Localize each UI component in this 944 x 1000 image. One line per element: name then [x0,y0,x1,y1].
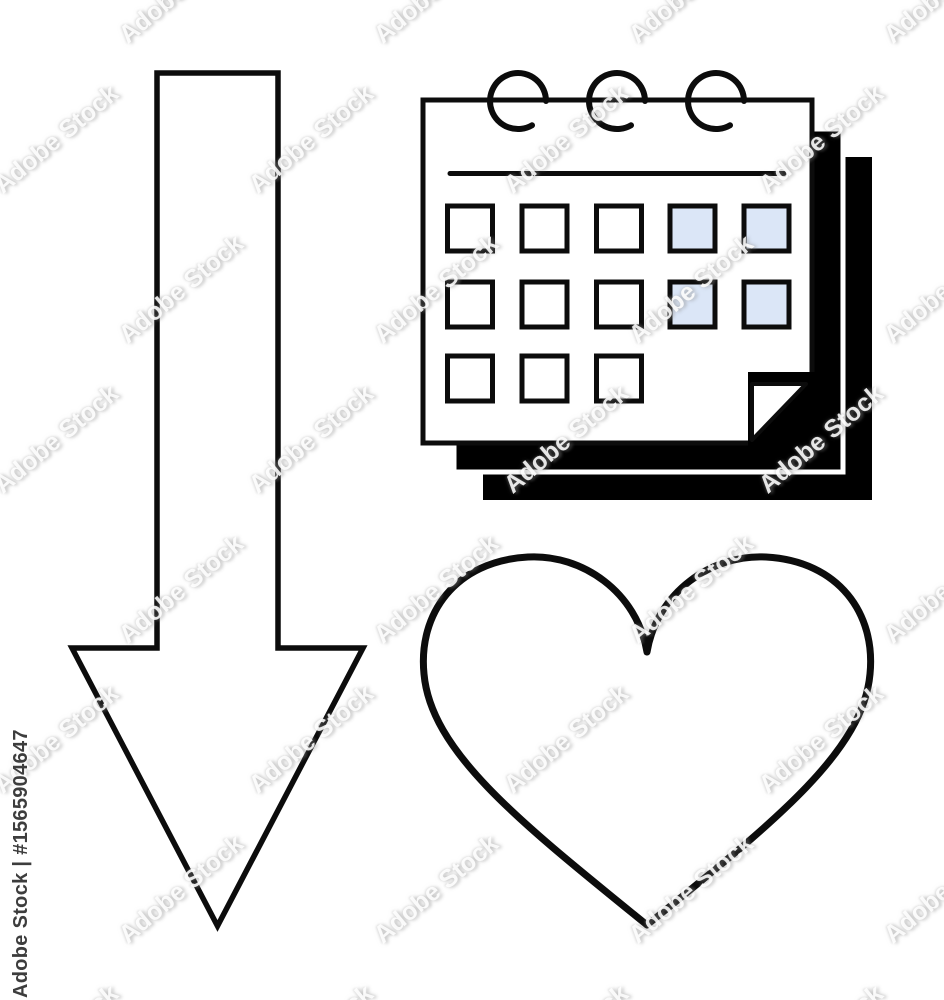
calendar-day-cell [522,356,567,401]
down-arrow-outline [72,73,363,926]
calendar-day-cell [597,206,642,251]
calendar-day-cell-highlighted [744,206,789,251]
calendar-day-cell [448,206,493,251]
stock-id-watermark: Adobe Stock | #1565904647 [10,729,33,998]
stock-image-preview: Adobe StockAdobe StockAdobe StockAdobe S… [0,0,944,1000]
calendar-day-cell [448,356,493,401]
calendar-day-cell [597,282,642,327]
heart-outline [423,557,870,925]
calendar-day-cell [597,356,642,401]
calendar-day-cell-highlighted [670,206,715,251]
illustration-svg [0,0,944,1000]
calendar-day-cell-highlighted [670,282,715,327]
calendar-day-cell [448,282,493,327]
calendar-day-cell [522,206,567,251]
calendar-day-cell [522,282,567,327]
calendar-icon [423,73,872,500]
heart-icon [423,557,870,925]
down-arrow-icon [72,73,363,926]
calendar-day-cell-highlighted [744,282,789,327]
